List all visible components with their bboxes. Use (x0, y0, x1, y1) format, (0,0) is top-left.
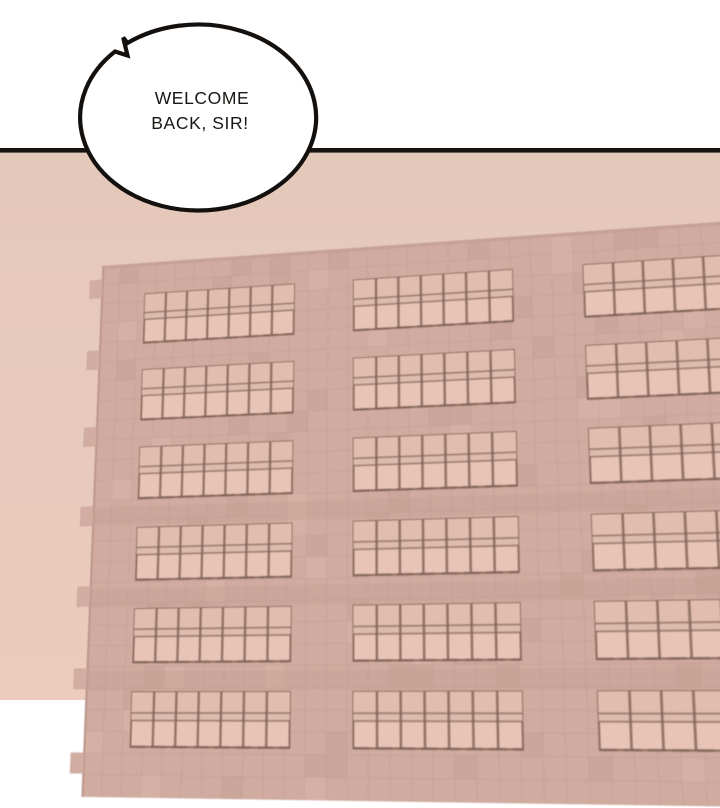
svg-text:BACK, SIR!: BACK, SIR! (151, 113, 248, 133)
svg-text:WELCOME: WELCOME (155, 88, 250, 108)
